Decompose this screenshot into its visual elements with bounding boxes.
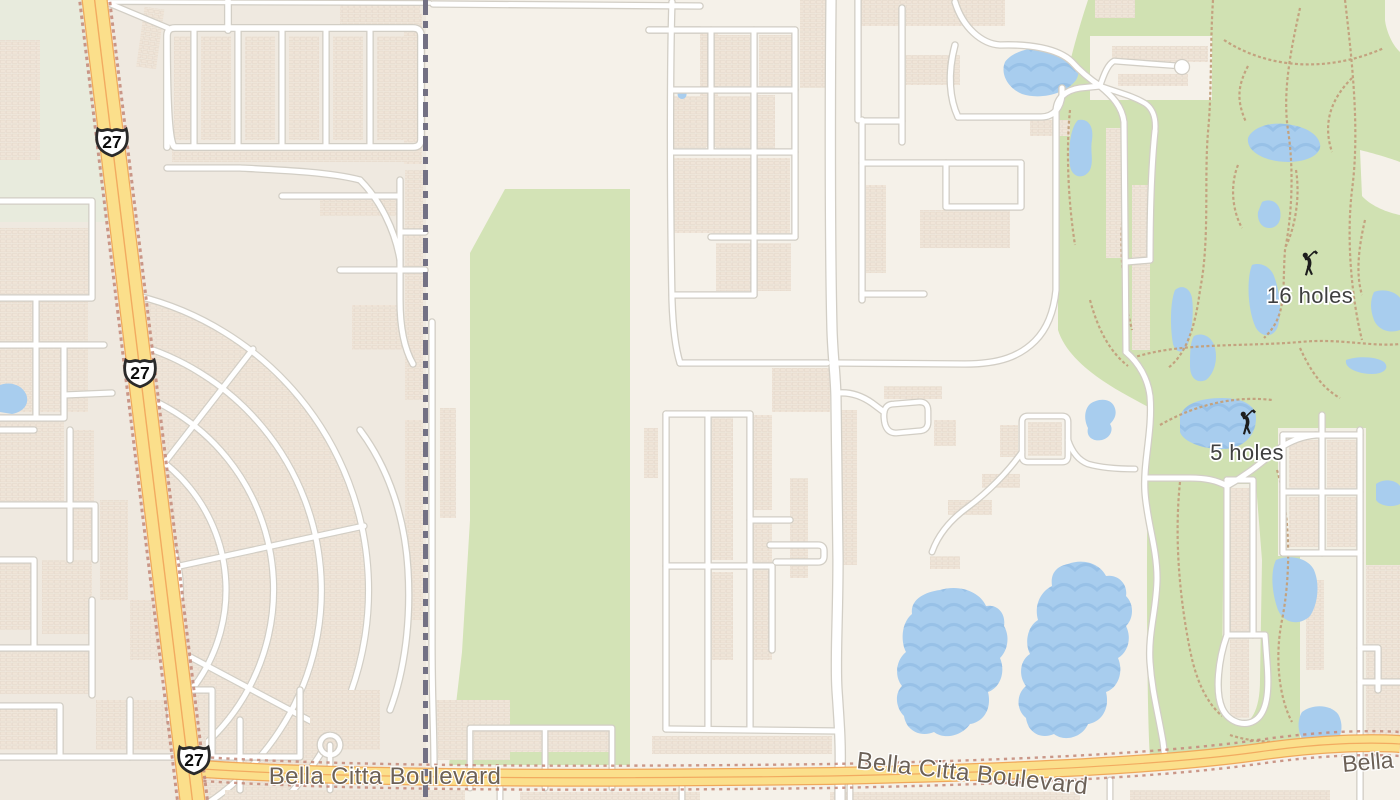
svg-text:27: 27 bbox=[184, 750, 203, 770]
svg-text:5 holes: 5 holes bbox=[1210, 440, 1284, 465]
svg-text:16 holes: 16 holes bbox=[1267, 283, 1353, 308]
svg-text:27: 27 bbox=[102, 132, 121, 152]
svg-text:Bella: Bella bbox=[1341, 747, 1394, 777]
svg-text:27: 27 bbox=[130, 363, 149, 383]
svg-text:Bella Citta Boulevard: Bella Citta Boulevard bbox=[269, 763, 502, 790]
